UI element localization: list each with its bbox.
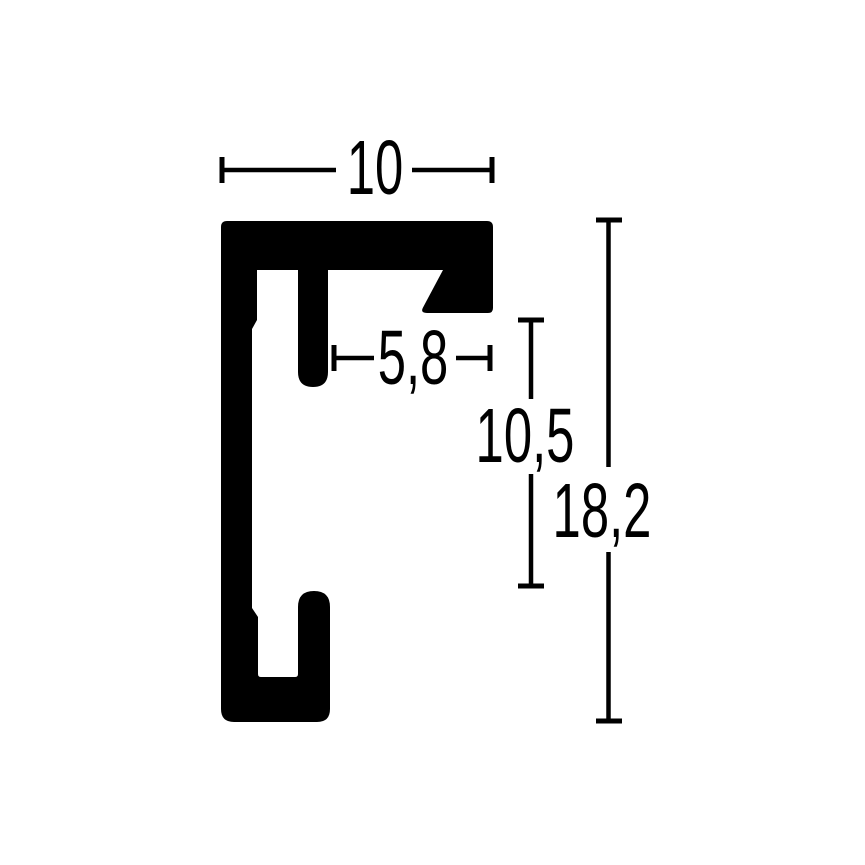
dimension-label-rabbet-opening: 5,8 — [378, 314, 449, 400]
dimension-label-total-height: 18,2 — [553, 467, 652, 553]
profile-cross-section-shape — [221, 221, 493, 722]
dimension-profile-width: 10 — [222, 124, 492, 210]
dimension-total-height: 18,2 — [553, 220, 652, 721]
dimension-label-inner-height: 10,5 — [476, 392, 575, 478]
drawing-canvas: 10 5,8 10,5 18,2 — [0, 0, 865, 865]
profile-diagram: 10 5,8 10,5 18,2 — [0, 0, 865, 865]
dimension-rabbet-opening: 5,8 — [334, 314, 490, 400]
dimension-label-profile-width: 10 — [347, 124, 404, 210]
